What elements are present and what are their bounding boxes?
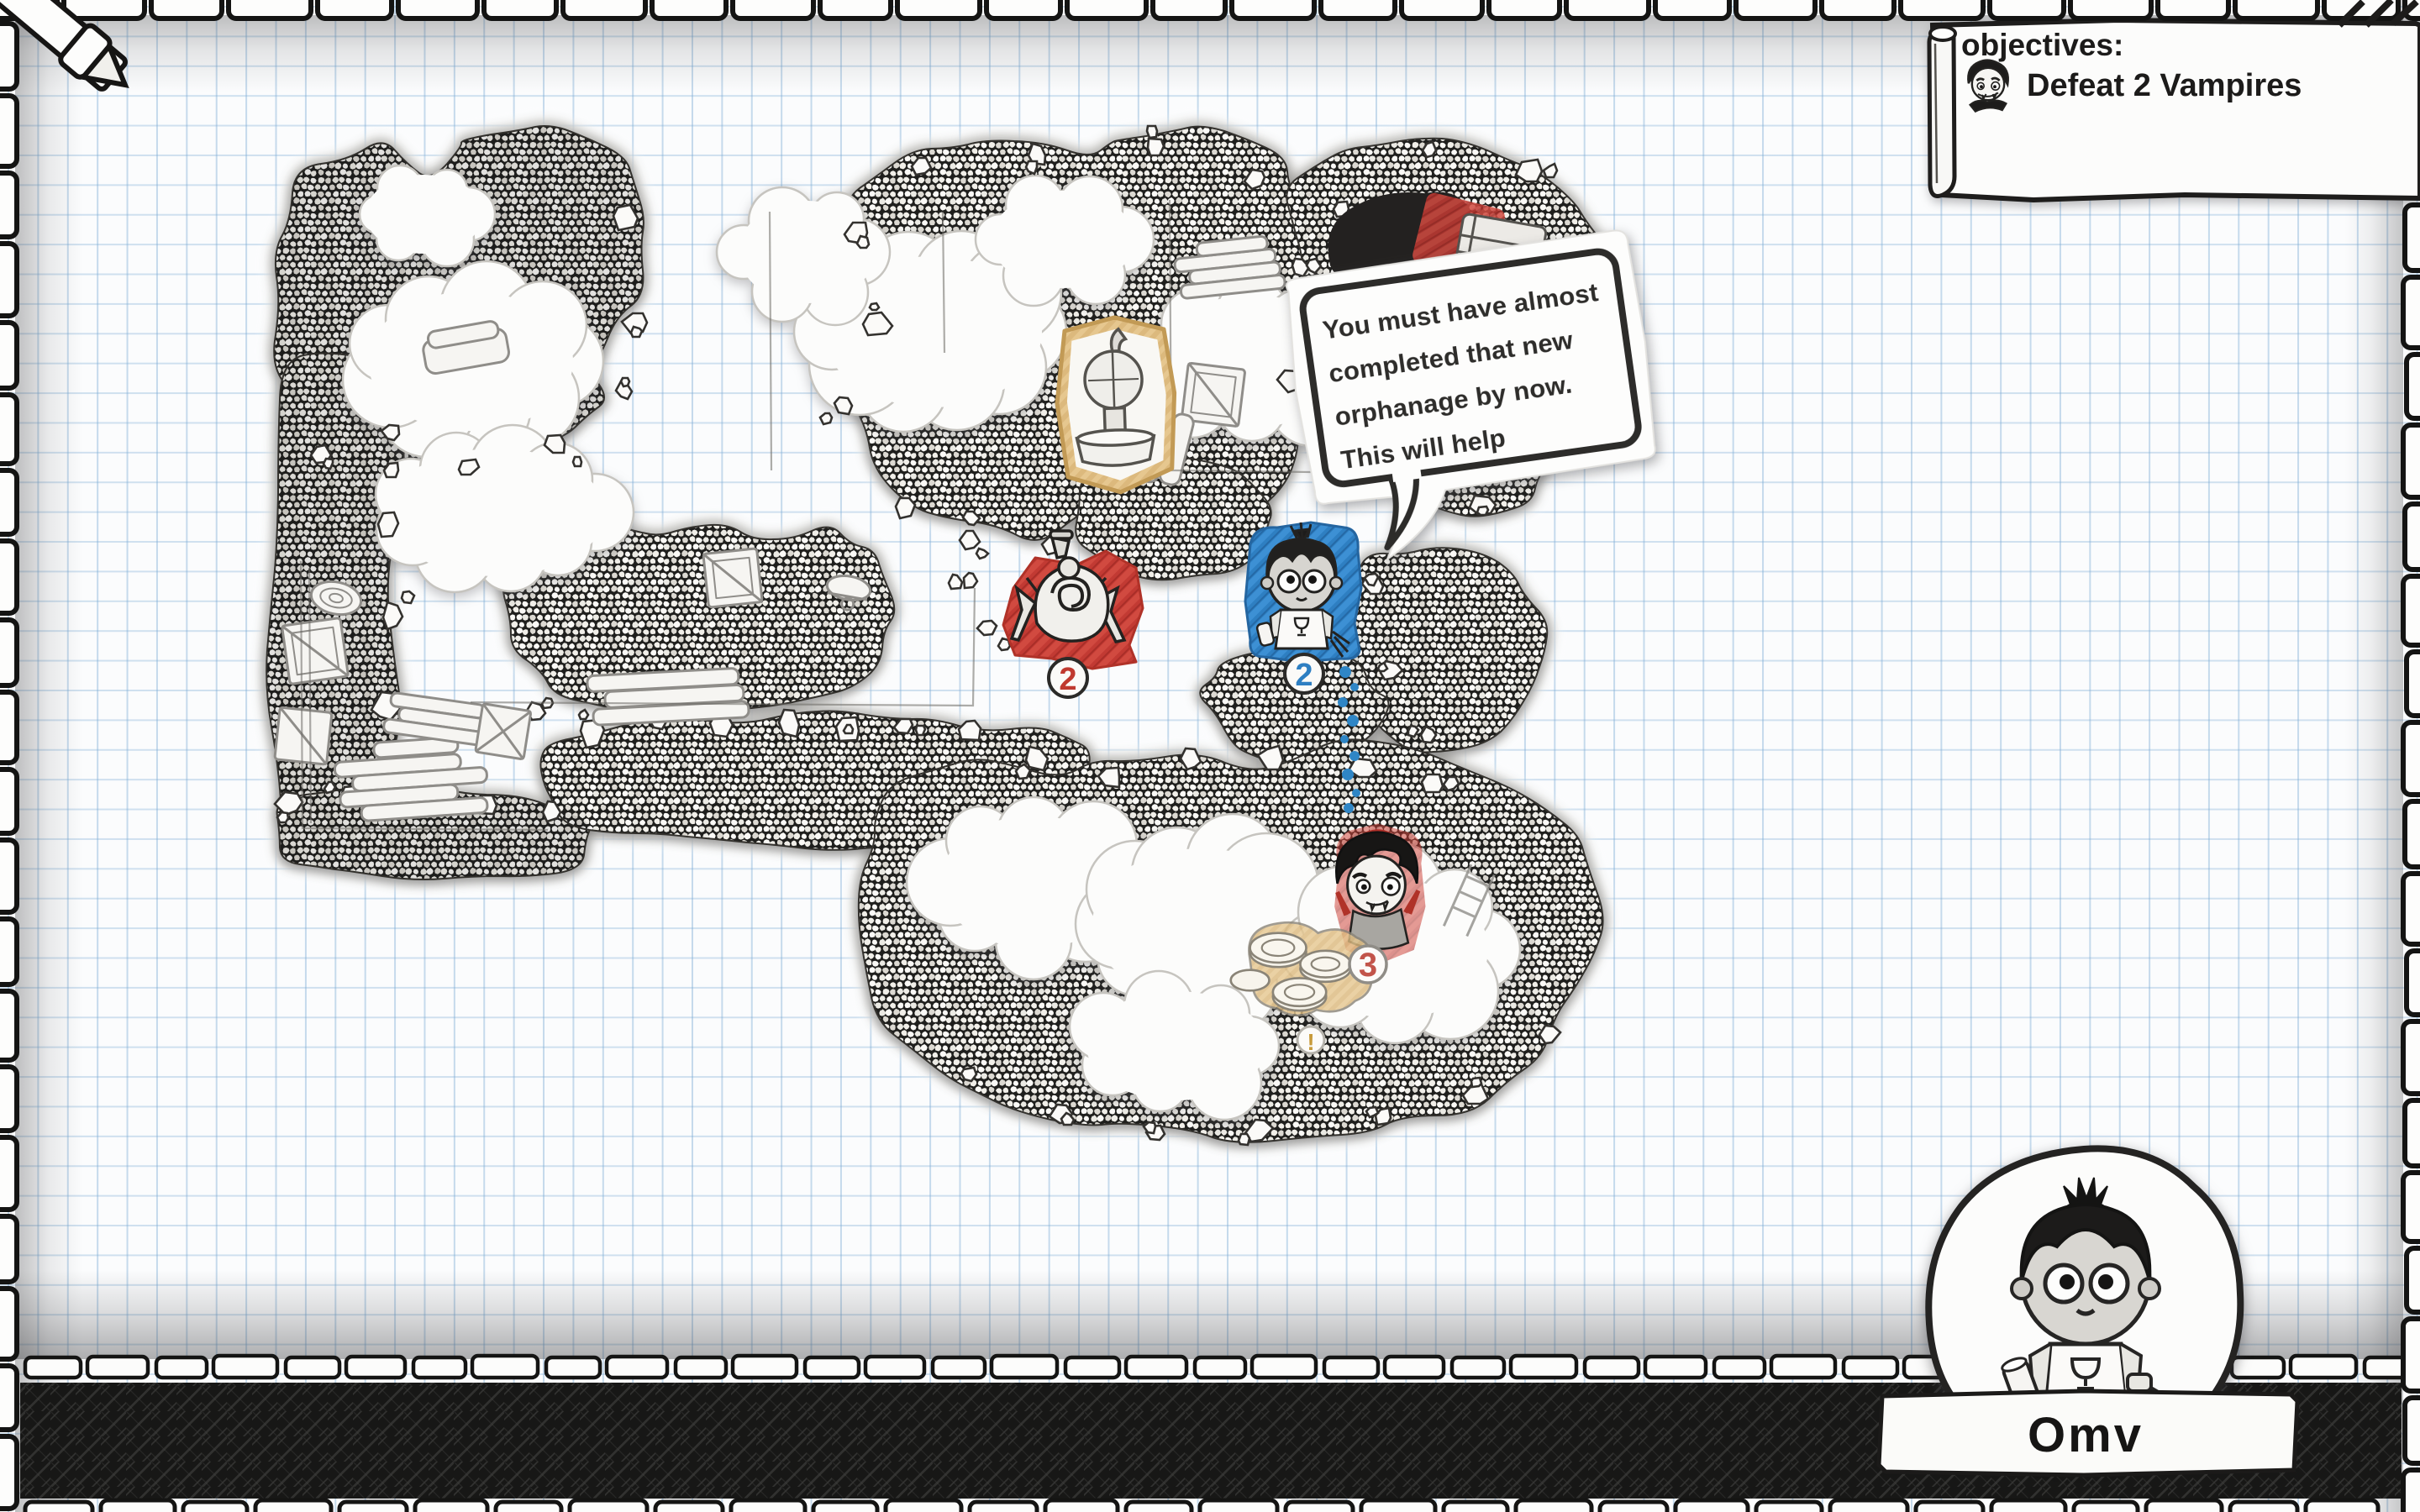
svg-text:2: 2 bbox=[1059, 662, 1076, 697]
svg-text:3: 3 bbox=[1359, 947, 1377, 984]
svg-text:objectives:: objectives: bbox=[1961, 28, 2123, 62]
svg-text:!: ! bbox=[1307, 1029, 1314, 1055]
svg-text:Defeat 2 Vampires: Defeat 2 Vampires bbox=[2027, 68, 2302, 103]
svg-text:Omv: Omv bbox=[2028, 1408, 2144, 1462]
svg-text:2: 2 bbox=[1295, 658, 1313, 693]
